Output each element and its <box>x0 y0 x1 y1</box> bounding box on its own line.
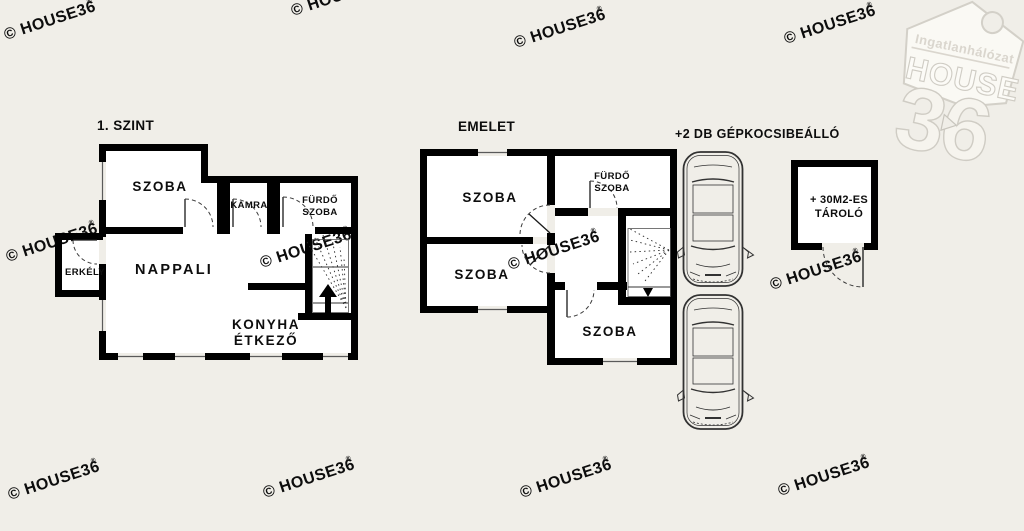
room-label-furdo-f2-line1: FÜRDŐ <box>594 170 630 182</box>
room-label-szoba-f1: SZOBA <box>132 179 187 194</box>
room-label-furdo-f2-line2: SZOBA <box>594 183 629 194</box>
room-label-szoba-f2-bottom: SZOBA <box>582 324 637 339</box>
floorplan-image: © HOUSE36® © HOUSE36® © HOUSE36® © HOUSE… <box>0 0 1024 531</box>
storage-label-line1: + 30M2-ES <box>810 194 868 206</box>
floor1-title: 1. SZINT <box>97 118 155 133</box>
floorplan-svg: © HOUSE36® © HOUSE36® © HOUSE36® © HOUSE… <box>0 0 1024 531</box>
parking-title: +2 DB GÉPKOCSIBEÁLLÓ <box>675 126 840 141</box>
room-label-szoba-f2-top: SZOBA <box>462 190 517 205</box>
room-label-kamra: KAMRA <box>230 200 267 211</box>
storage-label-line2: TÁROLÓ <box>815 207 863 220</box>
floor2-title: EMELET <box>458 119 516 134</box>
room-label-konyha-line2: ÉTKEZŐ <box>234 333 298 348</box>
room-label-konyha-line1: KONYHA <box>232 317 300 332</box>
room-label-szoba-f2-middle: SZOBA <box>454 267 509 282</box>
room-label-furdo-f1-line1: FÜRDŐ <box>302 194 338 206</box>
room-label-furdo-f1-line2: SZOBA <box>302 207 337 218</box>
room-label-nappali: NAPPALI <box>135 262 213 278</box>
room-label-erkely: ERKÉLY <box>65 267 105 278</box>
